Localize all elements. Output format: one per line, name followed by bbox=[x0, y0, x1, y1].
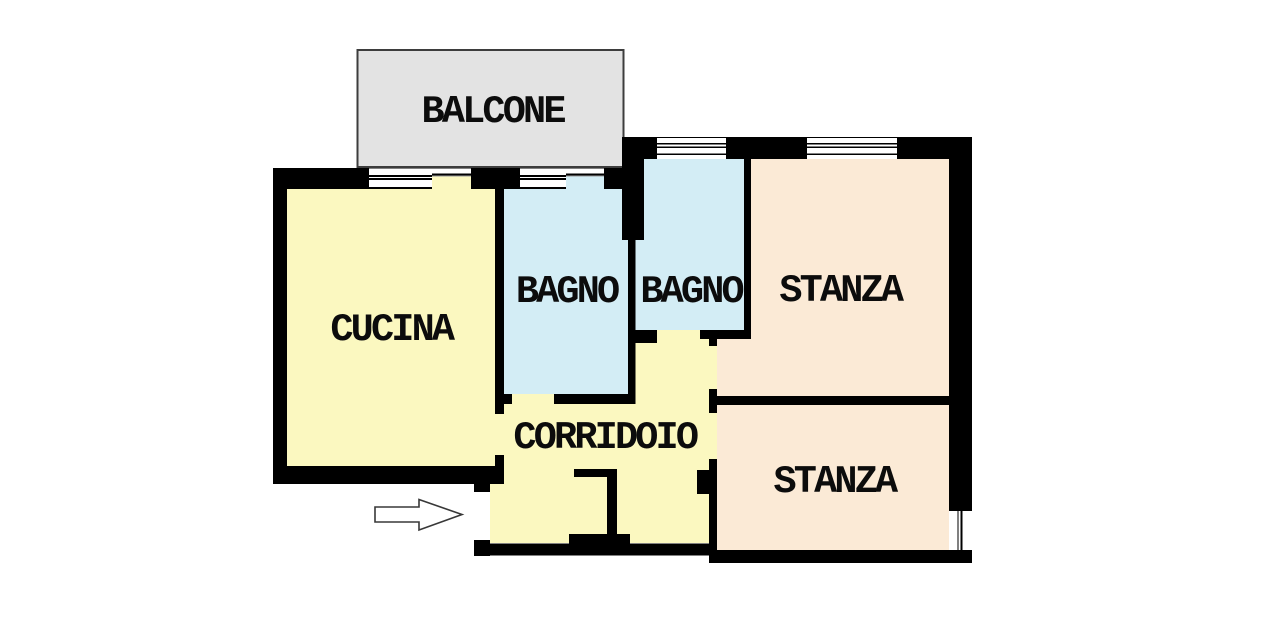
svg-text:STANZA: STANZA bbox=[779, 269, 905, 313]
svg-text:CORRIDOIO: CORRIDOIO bbox=[513, 416, 697, 460]
svg-text:BAGNO: BAGNO bbox=[640, 270, 743, 314]
svg-text:STANZA: STANZA bbox=[773, 460, 899, 504]
svg-text:BALCONE: BALCONE bbox=[422, 90, 566, 134]
svg-text:BAGNO: BAGNO bbox=[516, 270, 619, 314]
svg-text:CUCINA: CUCINA bbox=[330, 308, 456, 352]
